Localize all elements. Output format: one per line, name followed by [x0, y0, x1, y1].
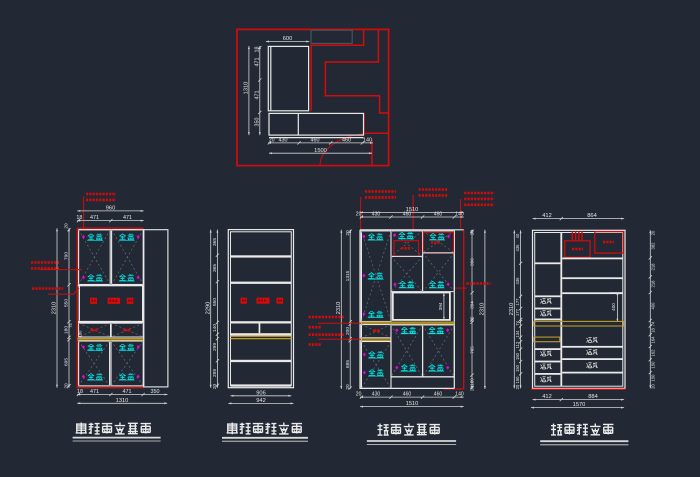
svg-text:177: 177 [515, 298, 520, 306]
svg-text:884: 884 [588, 394, 598, 400]
svg-text:299: 299 [212, 343, 218, 351]
svg-text:471: 471 [123, 389, 132, 395]
svg-text:460: 460 [434, 392, 443, 398]
svg-text:218: 218 [651, 263, 656, 271]
svg-text:412: 412 [542, 394, 552, 400]
svg-text:150: 150 [515, 352, 520, 360]
svg-text:20: 20 [356, 392, 362, 398]
svg-text:140: 140 [455, 212, 464, 218]
svg-text:942: 942 [256, 398, 266, 404]
svg-text:18: 18 [254, 47, 260, 53]
svg-text:299: 299 [212, 369, 218, 377]
svg-text:2310: 2310 [480, 303, 486, 316]
svg-text:471: 471 [90, 215, 99, 221]
svg-text:20: 20 [345, 384, 351, 390]
svg-text:906: 906 [256, 390, 266, 396]
svg-text:394: 394 [470, 301, 475, 309]
svg-text:471: 471 [90, 389, 99, 395]
svg-text:150: 150 [515, 376, 520, 384]
svg-text:471: 471 [123, 215, 132, 221]
svg-text:460: 460 [342, 138, 351, 144]
svg-text:600: 600 [283, 36, 293, 42]
svg-text:74: 74 [651, 321, 656, 326]
svg-text:412: 412 [542, 213, 552, 219]
svg-text:460: 460 [403, 392, 412, 398]
svg-text:1310: 1310 [116, 398, 129, 404]
svg-text:20: 20 [651, 384, 656, 389]
svg-text:35: 35 [470, 316, 475, 322]
svg-text:365: 365 [212, 264, 218, 272]
svg-text:150: 150 [515, 364, 520, 372]
svg-text:40: 40 [515, 233, 520, 238]
svg-text:18: 18 [77, 389, 83, 395]
svg-text:200: 200 [345, 327, 351, 335]
svg-text:18: 18 [651, 328, 656, 333]
svg-text:2310: 2310 [509, 303, 515, 316]
svg-text:695: 695 [64, 358, 70, 366]
svg-text:20: 20 [212, 384, 218, 390]
svg-text:460: 460 [311, 138, 320, 144]
svg-text:20: 20 [345, 230, 351, 236]
svg-text:790: 790 [64, 252, 70, 260]
svg-text:471: 471 [254, 58, 260, 67]
svg-text:218: 218 [651, 280, 656, 288]
svg-text:430: 430 [372, 392, 381, 398]
svg-text:350: 350 [151, 389, 160, 395]
svg-text:382: 382 [651, 242, 656, 250]
svg-text:180: 180 [470, 378, 475, 386]
svg-text:436: 436 [515, 244, 520, 252]
svg-text:177: 177 [515, 308, 520, 316]
svg-text:20: 20 [64, 223, 70, 229]
svg-text:140: 140 [363, 138, 372, 144]
svg-text:140: 140 [455, 392, 464, 398]
svg-text:400: 400 [651, 302, 656, 310]
svg-text:471: 471 [254, 91, 260, 100]
svg-text:2290: 2290 [205, 302, 211, 315]
svg-text:430: 430 [279, 138, 288, 144]
svg-text:1510: 1510 [406, 401, 419, 407]
svg-text:436: 436 [515, 277, 520, 285]
svg-text:550: 550 [212, 298, 218, 306]
svg-text:20: 20 [515, 384, 520, 389]
svg-text:365: 365 [212, 238, 218, 246]
svg-text:695: 695 [345, 360, 351, 368]
svg-text:20: 20 [269, 138, 275, 144]
svg-text:162: 162 [651, 349, 656, 357]
svg-text:400: 400 [611, 303, 616, 311]
svg-text:460: 460 [434, 212, 443, 218]
svg-text:896: 896 [470, 258, 475, 266]
svg-text:74: 74 [515, 320, 520, 325]
svg-text:112: 112 [515, 341, 520, 348]
svg-text:350: 350 [254, 118, 260, 127]
svg-text:20: 20 [356, 212, 362, 218]
svg-text:164: 164 [651, 336, 656, 344]
svg-text:2310: 2310 [52, 302, 58, 315]
svg-text:75: 75 [68, 323, 73, 328]
svg-text:2310: 2310 [336, 302, 342, 315]
svg-text:765: 765 [470, 346, 475, 354]
svg-text:18: 18 [76, 215, 82, 221]
svg-text:1500: 1500 [314, 148, 327, 154]
svg-text:134: 134 [515, 330, 520, 338]
svg-text:1310: 1310 [244, 82, 250, 95]
svg-text:20: 20 [470, 386, 475, 392]
svg-text:150: 150 [651, 361, 656, 369]
svg-text:960: 960 [106, 206, 116, 212]
svg-text:550: 550 [64, 299, 70, 307]
svg-text:394: 394 [438, 302, 443, 310]
svg-text:150: 150 [651, 374, 656, 382]
svg-text:140: 140 [212, 324, 218, 332]
svg-text:430: 430 [372, 212, 381, 218]
svg-text:20: 20 [64, 383, 70, 389]
svg-text:20: 20 [470, 230, 475, 236]
svg-text:1570: 1570 [573, 402, 586, 408]
svg-text:864: 864 [587, 213, 597, 219]
svg-text:180: 180 [78, 330, 83, 338]
svg-text:20: 20 [651, 230, 656, 235]
svg-text:1315: 1315 [345, 270, 351, 281]
svg-text:460: 460 [403, 212, 412, 218]
